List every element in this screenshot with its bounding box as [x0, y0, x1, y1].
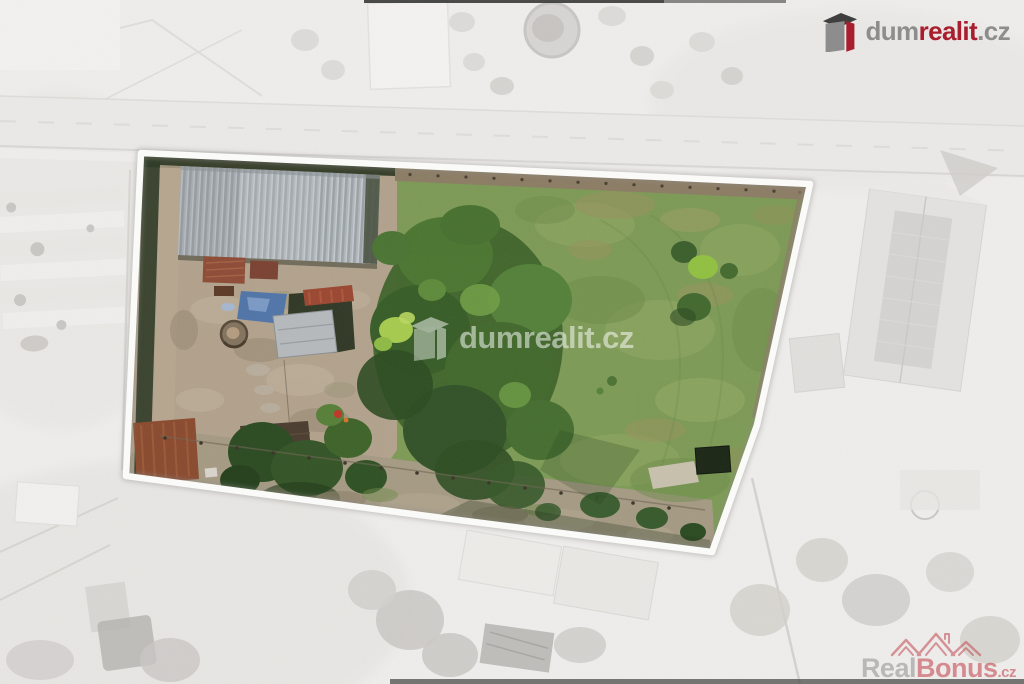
dumrealit-logo-text: dumrealit.cz [865, 18, 1010, 44]
logo-part-red: realit [919, 16, 978, 46]
real-estate-aerial-image: dumrealit.cz dumrealit.cz RealBonus.cz [0, 0, 1024, 684]
logo-part-gray: dum [865, 16, 918, 46]
dumrealit-box-icon [822, 10, 858, 52]
aerial-photo [0, 0, 1024, 684]
logo-part-suffix: .cz [977, 16, 1010, 46]
dumrealit-logo: dumrealit.cz [822, 10, 1010, 52]
